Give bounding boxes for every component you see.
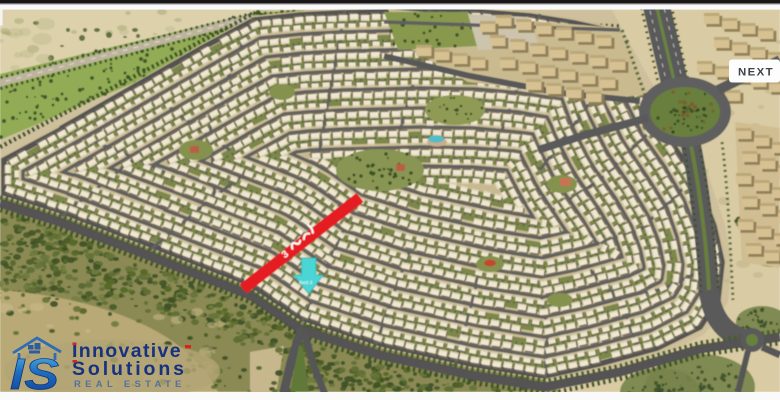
svg-text:IS: IS bbox=[10, 350, 59, 399]
svg-text:Solutions: Solutions bbox=[72, 358, 187, 380]
svg-text:REAL ESTATE: REAL ESTATE bbox=[74, 379, 186, 390]
svg-text:NEXT: NEXT bbox=[738, 67, 774, 79]
